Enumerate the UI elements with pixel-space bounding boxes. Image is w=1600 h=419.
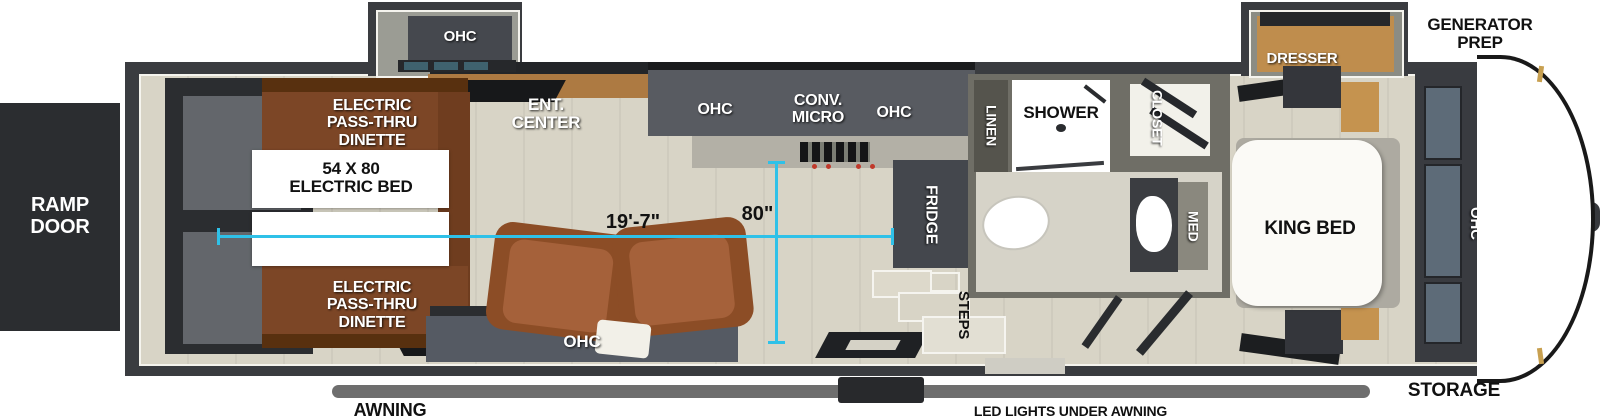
wardrobe-panel-2: [1424, 164, 1462, 278]
storage-label: STORAGE: [1404, 379, 1504, 403]
dinette-top-label: ELECTRIC PASS-THRU DINETTE: [296, 94, 448, 152]
length-dimension-line: [218, 235, 893, 238]
bedroom-cabinet-bottom-dark: [1285, 310, 1343, 354]
cooktop-knob-4: [870, 164, 875, 169]
length-dim-cap-left: [217, 228, 220, 245]
slideout-glass-2: [434, 62, 458, 70]
linen-label: LINEN: [979, 84, 1003, 168]
recliner-left-cushion: [501, 238, 614, 334]
sofa-ohc-label: OHC: [556, 330, 608, 354]
electric-bed-platform: [252, 212, 449, 266]
length-dim-cap-right: [891, 228, 894, 245]
steps-label: STEPS: [950, 282, 976, 348]
ent-center-label: ENT. CENTER: [496, 94, 596, 134]
kitchen-ohc-left-label: OHC: [690, 98, 740, 122]
floorplan-diagram: RAMP DOOR AWNING LED LIGHTS UNDER AWNING…: [0, 0, 1600, 419]
slideout-glass-3: [464, 62, 488, 70]
wardrobe-panel-3: [1424, 282, 1462, 344]
entry-door-opening: [985, 358, 1065, 374]
closet-label: CLOSET: [1144, 78, 1170, 158]
length-dimension-label: 19'-7": [590, 210, 676, 234]
conv-micro-label: CONV. MICRO: [773, 86, 863, 132]
led-lights-label: LED LIGHTS UNDER AWNING: [968, 404, 1173, 419]
slideout-ohc-label: OHC: [438, 26, 482, 48]
dresser-label: DRESSER: [1256, 50, 1348, 68]
kitchen-ohc-right-label: OHC: [866, 100, 922, 126]
cooktop: [800, 142, 870, 162]
width-dimension-label: 80": [730, 202, 785, 226]
ramp-door-label: RAMP DOOR: [8, 192, 112, 242]
floor-vent-inner: [845, 340, 900, 350]
entry-step: [838, 377, 924, 403]
wardrobe-panel-1: [1424, 86, 1462, 160]
width-dim-cap-bottom: [768, 341, 785, 344]
generator-prep-label: GENERATOR PREP: [1405, 12, 1555, 56]
vanity-sink: [1136, 196, 1172, 252]
width-dim-cap-top: [768, 161, 785, 164]
electric-bed-label: 54 X 80 ELECTRIC BED: [256, 156, 446, 200]
front-cap: [1477, 55, 1595, 383]
cooktop-knob-1: [812, 164, 817, 169]
dresser-top-strip: [1260, 12, 1390, 26]
shower-label: SHOWER: [1014, 102, 1108, 124]
king-bed-label: KING BED: [1250, 218, 1370, 240]
bedroom-cabinet-top-dark: [1283, 66, 1341, 108]
cooktop-knob-2: [826, 164, 831, 169]
width-dimension-line: [775, 162, 778, 343]
fridge-label: FRIDGE: [918, 170, 944, 260]
med-label: MED: [1180, 198, 1206, 254]
dinette-bottom-label: ELECTRIC PASS-THRU DINETTE: [296, 276, 448, 334]
dinette-bench-top-edge: [262, 78, 468, 92]
slideout-glass-1: [404, 62, 428, 70]
bedroom-cabinet-top-tan: [1341, 82, 1379, 132]
recliner-right-cushion: [628, 233, 736, 327]
kitchen-ohc-band-top-edge: [648, 62, 975, 70]
shower-drain: [1056, 124, 1066, 132]
cooktop-knob-3: [856, 164, 861, 169]
awning-label: AWNING: [345, 402, 435, 419]
